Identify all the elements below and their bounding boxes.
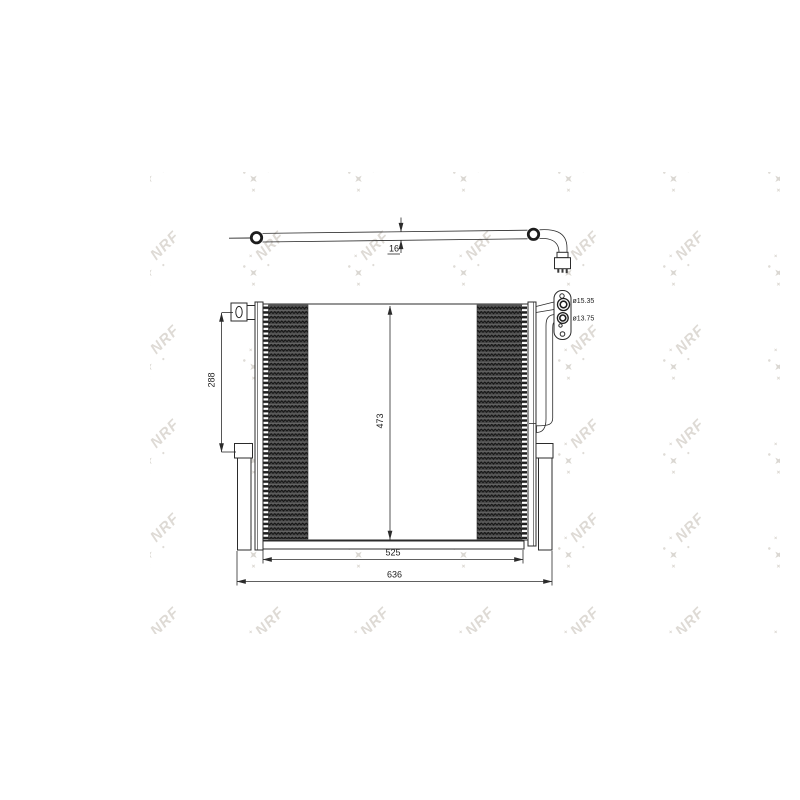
port-small-label: ø13.75 [573, 316, 595, 323]
plug-neck [557, 252, 568, 257]
plug-body [555, 258, 571, 269]
header-left [255, 302, 263, 550]
pipe-fitting-ring-right [528, 229, 538, 239]
plate-hole-bottom [560, 332, 565, 337]
port-large-inner [560, 301, 567, 308]
tube-ends-left [264, 305, 269, 539]
plate-hole-mid [559, 324, 562, 327]
port-small-inner [560, 315, 566, 321]
plate-hole-top [560, 294, 564, 298]
tube-ends-right [522, 305, 527, 539]
plug-prong [557, 269, 559, 273]
bracket-mid-right [536, 444, 553, 459]
side-rail-left [238, 458, 252, 550]
bracket-link [247, 306, 255, 320]
header-right [528, 302, 536, 546]
fin-pack-right [477, 305, 522, 539]
dim-bracket-span-label: 288 [207, 372, 217, 387]
condenser-body [231, 302, 553, 550]
condenser-technical-drawing: NRF 16 [0, 0, 800, 800]
dim-overall-width-label: 636 [387, 570, 402, 580]
pipe-fitting-ring-left [251, 233, 261, 243]
plug-prong [566, 269, 568, 274]
dim-core-width-label: 525 [385, 548, 400, 558]
plug-prong [562, 269, 564, 273]
bracket-mid-left [235, 444, 253, 459]
side-rail-right [539, 458, 553, 550]
dim-core-height-label: 473 [375, 413, 385, 428]
drawing-canvas: NRF 16 [0, 0, 800, 800]
fin-pack-left [269, 305, 309, 539]
bracket-slot-hole [236, 306, 242, 317]
port-large-label: ø15.35 [573, 298, 595, 305]
dim-tube-diameter-label: 16 [389, 244, 399, 254]
